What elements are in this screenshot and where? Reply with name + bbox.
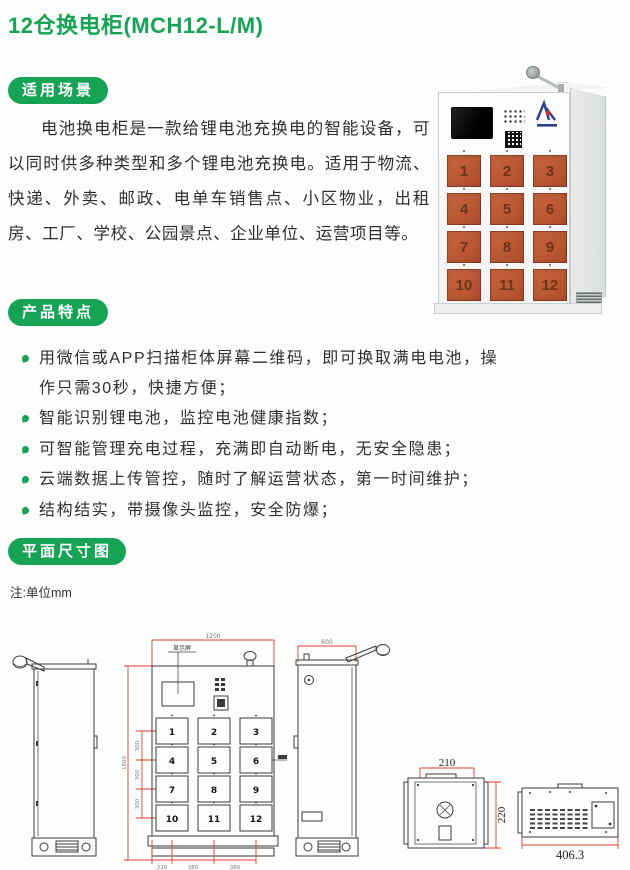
bolt-hole (40, 843, 48, 851)
door-tile: 8 (490, 231, 524, 263)
dim-width-label: 210 (439, 758, 456, 769)
door-number: 1 (169, 728, 175, 738)
feature-item: 可智能管理充电过程，充满即自动断电，无安全隐患； (22, 435, 502, 465)
dim-bottom-label: 380 (188, 865, 199, 870)
dim-row-label: 300 (135, 740, 141, 751)
cabinet-cap (32, 664, 96, 669)
bullet-icon (21, 414, 29, 422)
bolt-hole (342, 843, 350, 851)
cabinet-cap (296, 660, 358, 665)
cabinet-body (34, 669, 94, 838)
compartment-outline (408, 778, 484, 848)
speaker-grille-icon (215, 678, 225, 691)
product-sheet-page: 12仓换电柜(MCH12-L/M) 适用场景 产品特点 平面尺寸图 电池换电柜是… (0, 0, 630, 870)
door-tile: 4 (447, 193, 481, 225)
drawing-front-view: 1200 1800 300 300 300 显示屏 1 2 3 4 (122, 630, 290, 870)
bullet-icon (21, 445, 29, 453)
feature-list: 用微信或APP扫描柜体屏幕二维码，即可换取满电电池，操作只需30秒，快捷方便； … (22, 344, 502, 526)
door-tile: 10 (447, 269, 481, 301)
drawing-side-view-right: 600 (288, 636, 406, 868)
door-number: 6 (253, 757, 259, 767)
section-badge-dimensions: 平面尺寸图 (8, 538, 126, 565)
feature-text: 可智能管理充电过程，充满即自动断电，无安全隐患； (39, 435, 461, 465)
door-number: 8 (211, 786, 217, 796)
door-callout-mark (278, 755, 287, 759)
door-tile: 6 (533, 193, 567, 225)
cabinet-plinth (434, 303, 602, 314)
door-number: 11 (208, 815, 221, 825)
feature-item: 智能识别锂电池，监控电池健康指数； (22, 404, 502, 434)
door-number: 2 (211, 728, 217, 738)
feature-text: 云端数据上传管控，随时了解运营状态，第一时间维护； (39, 465, 479, 495)
camera-icon (526, 66, 540, 79)
feature-text: 用微信或APP扫描柜体屏幕二维码，即可换取满电电池，操作只需30秒，快捷方便； (39, 344, 502, 403)
cabinet-body (152, 666, 274, 836)
door-number: 12 (250, 815, 263, 825)
dim-width-label: 406.3 (556, 848, 584, 862)
door-tile: 7 (447, 231, 481, 263)
section-badge-features: 产品特点 (8, 299, 108, 326)
door-number: 3 (253, 728, 259, 738)
door-number: 5 (211, 757, 217, 767)
dim-height-label: 220 (496, 806, 508, 823)
dim-row-label: 300 (135, 769, 141, 780)
door-tile: 11 (490, 269, 524, 301)
cabinet-base (148, 836, 278, 846)
handle (294, 736, 298, 748)
bullet-icon (21, 475, 29, 483)
door-tile: 9 (533, 231, 567, 263)
door-grid: 1 2 3 4 5 6 7 8 9 10 11 12 (156, 715, 272, 831)
bullet-icon (21, 506, 29, 514)
door-number: 9 (253, 786, 259, 796)
dim-row-label: 300 (135, 798, 141, 809)
page-title: 12仓换电柜(MCH12-L/M) (8, 8, 263, 40)
drawing-compartment-side: 406.3 (508, 770, 630, 862)
dim-width-label: 1200 (205, 633, 220, 640)
feature-item: 结构结实，带摄像头监控，安全防爆； (22, 496, 502, 526)
feature-item: 云端数据上传管控，随时了解运营状态，第一时间维护； (22, 465, 502, 495)
feature-item: 用微信或APP扫描柜体屏幕二维码，即可换取满电电池，操作只需30秒，快捷方便； (22, 344, 502, 403)
label-plate (302, 812, 322, 821)
screen-callout-label: 显示屏 (173, 645, 191, 652)
bullet-icon (21, 354, 29, 362)
handle (94, 736, 97, 748)
feature-text: 结构结实，带摄像头监控，安全防爆； (39, 496, 338, 526)
bolt-hole (304, 843, 312, 851)
section-badge-scenarios: 适用场景 (8, 77, 108, 104)
door-tile: 1 (447, 155, 481, 187)
product-photo: 1 2 3 4 5 6 7 8 9 10 11 12 (430, 64, 625, 318)
dim-bottom-label: 220 (157, 865, 168, 870)
vent-grille-icon (318, 841, 340, 852)
unit-note: 注:单位mm (10, 582, 72, 601)
door-tile: 2 (490, 155, 524, 187)
door-grid: 1 2 3 4 5 6 7 8 9 10 11 12 (439, 93, 571, 305)
door-tile: 3 (533, 155, 567, 187)
compartment-outline (522, 788, 618, 837)
scenarios-paragraph: 电池换电柜是一款给锂电池充换电的智能设备，可以同时供多种类型和多个锂电池充换电。… (8, 112, 430, 252)
cabinet-side-face (570, 88, 606, 304)
vent-grille-icon (56, 841, 78, 852)
dim-height-label: 1800 (122, 756, 128, 770)
door-tile: 12 (533, 269, 567, 301)
slot (439, 826, 451, 840)
dim-bottom-label: 380 (230, 865, 241, 870)
door-number: 10 (166, 815, 179, 825)
feature-text: 智能识别锂电池，监控电池健康指数； (39, 404, 338, 434)
door-number: 7 (169, 786, 175, 796)
door-tile: 5 (490, 193, 524, 225)
drawing-compartment-front: 210 220 (400, 758, 508, 862)
drawing-side-view-left (4, 636, 122, 868)
camera-icon (244, 652, 256, 661)
door-number: 4 (169, 757, 175, 767)
bolt-hole (82, 843, 90, 851)
dim-width-label: 600 (321, 639, 333, 646)
vent-grille-icon (530, 810, 588, 828)
cabinet-front-face: 1 2 3 4 5 6 7 8 9 10 11 12 (438, 92, 570, 304)
